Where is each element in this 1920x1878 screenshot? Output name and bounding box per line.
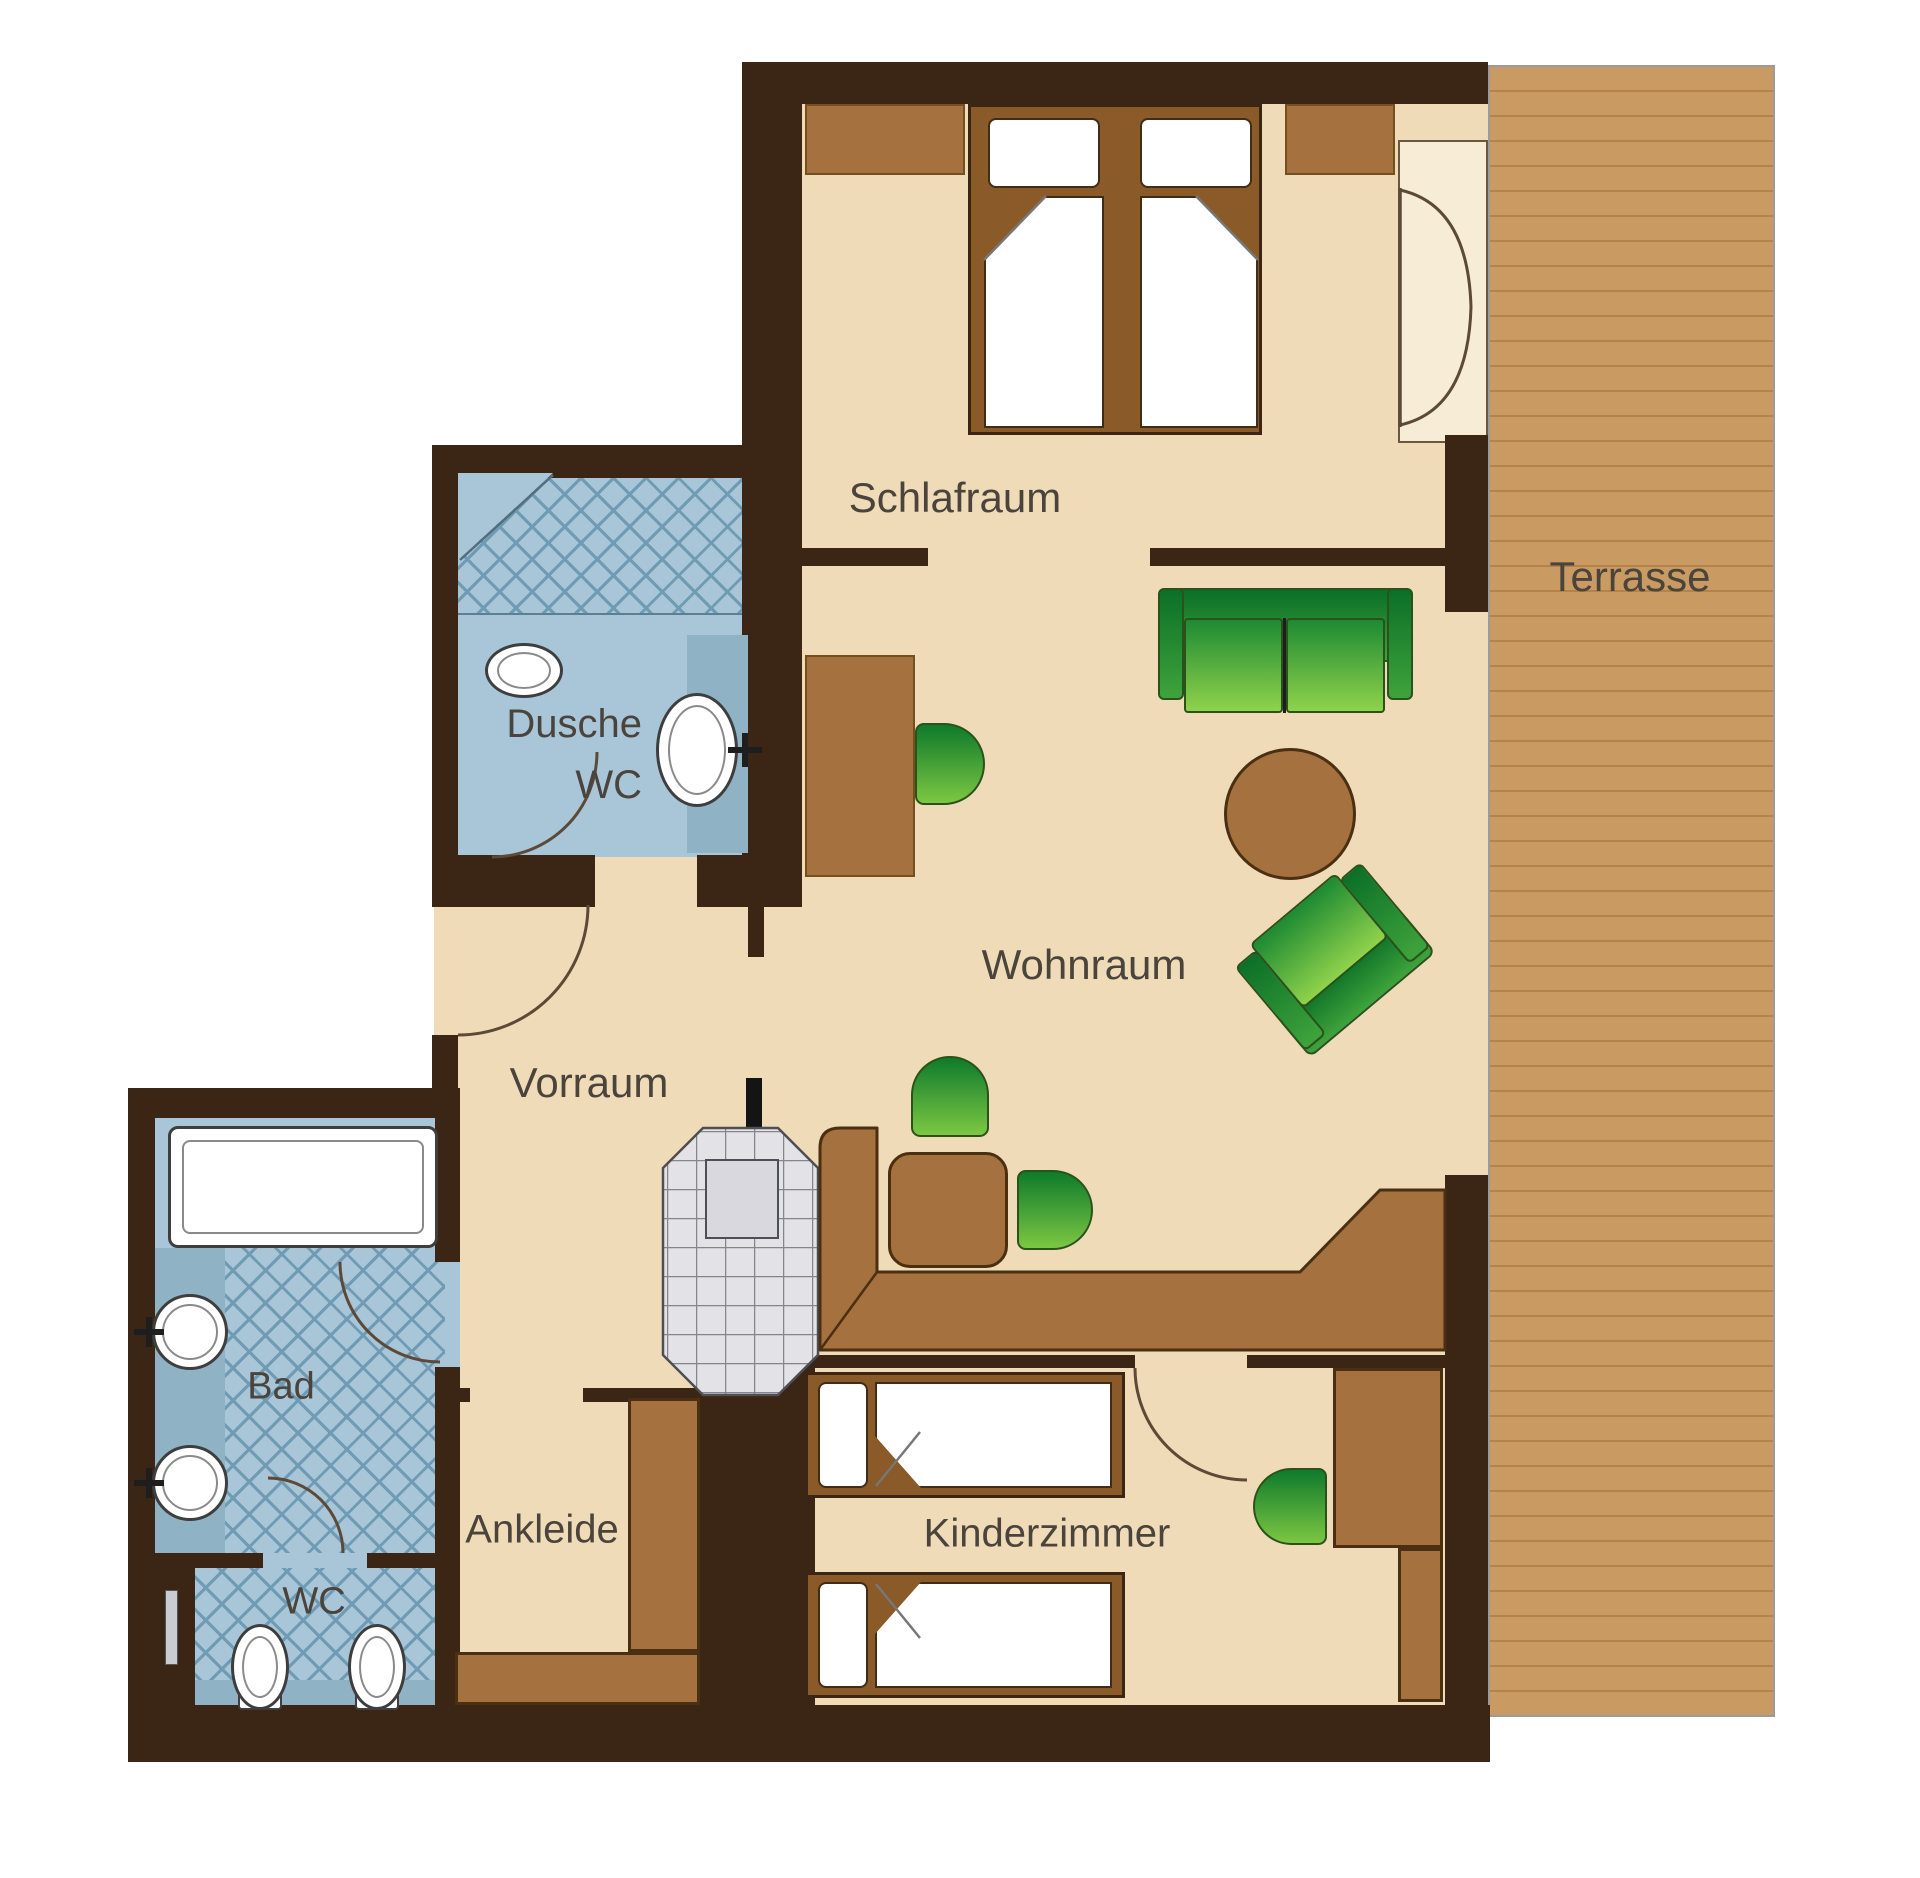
terrace-door-arc-top [1400,190,1471,307]
bath-door-arc [340,1262,440,1362]
kids-door-arc [1135,1368,1247,1480]
room-label-schlafraum: Schlafraum [849,474,1061,522]
room-label-vorraum: Vorraum [510,1059,669,1107]
room-label-wohnraum: Wohnraum [982,941,1187,989]
room-label-kinderzimmer: Kinderzimmer [924,1512,1171,1557]
room-label-dusche-line2: WC [575,763,642,807]
room-label-terrasse: Terrasse [1549,553,1710,601]
corner-bench [820,1128,1445,1350]
room-label-bad: Bad [247,1366,315,1409]
room-label-dusche-wc: Dusche WC [420,694,642,816]
wc-door-arc [268,1478,343,1553]
entry-door-arc [458,905,588,1035]
floor-plan: Schlafraum Terrasse Wohnraum Vorraum Dus… [0,0,1920,1878]
room-label-dusche-line1: Dusche [506,702,642,746]
room-label-ankleide: Ankleide [465,1508,618,1553]
stove-flue [746,1078,762,1130]
stove-core [706,1160,778,1238]
room-label-wc: WC [282,1581,345,1624]
shower-corner [458,473,553,560]
terrace-door-arc-bottom [1400,307,1471,425]
